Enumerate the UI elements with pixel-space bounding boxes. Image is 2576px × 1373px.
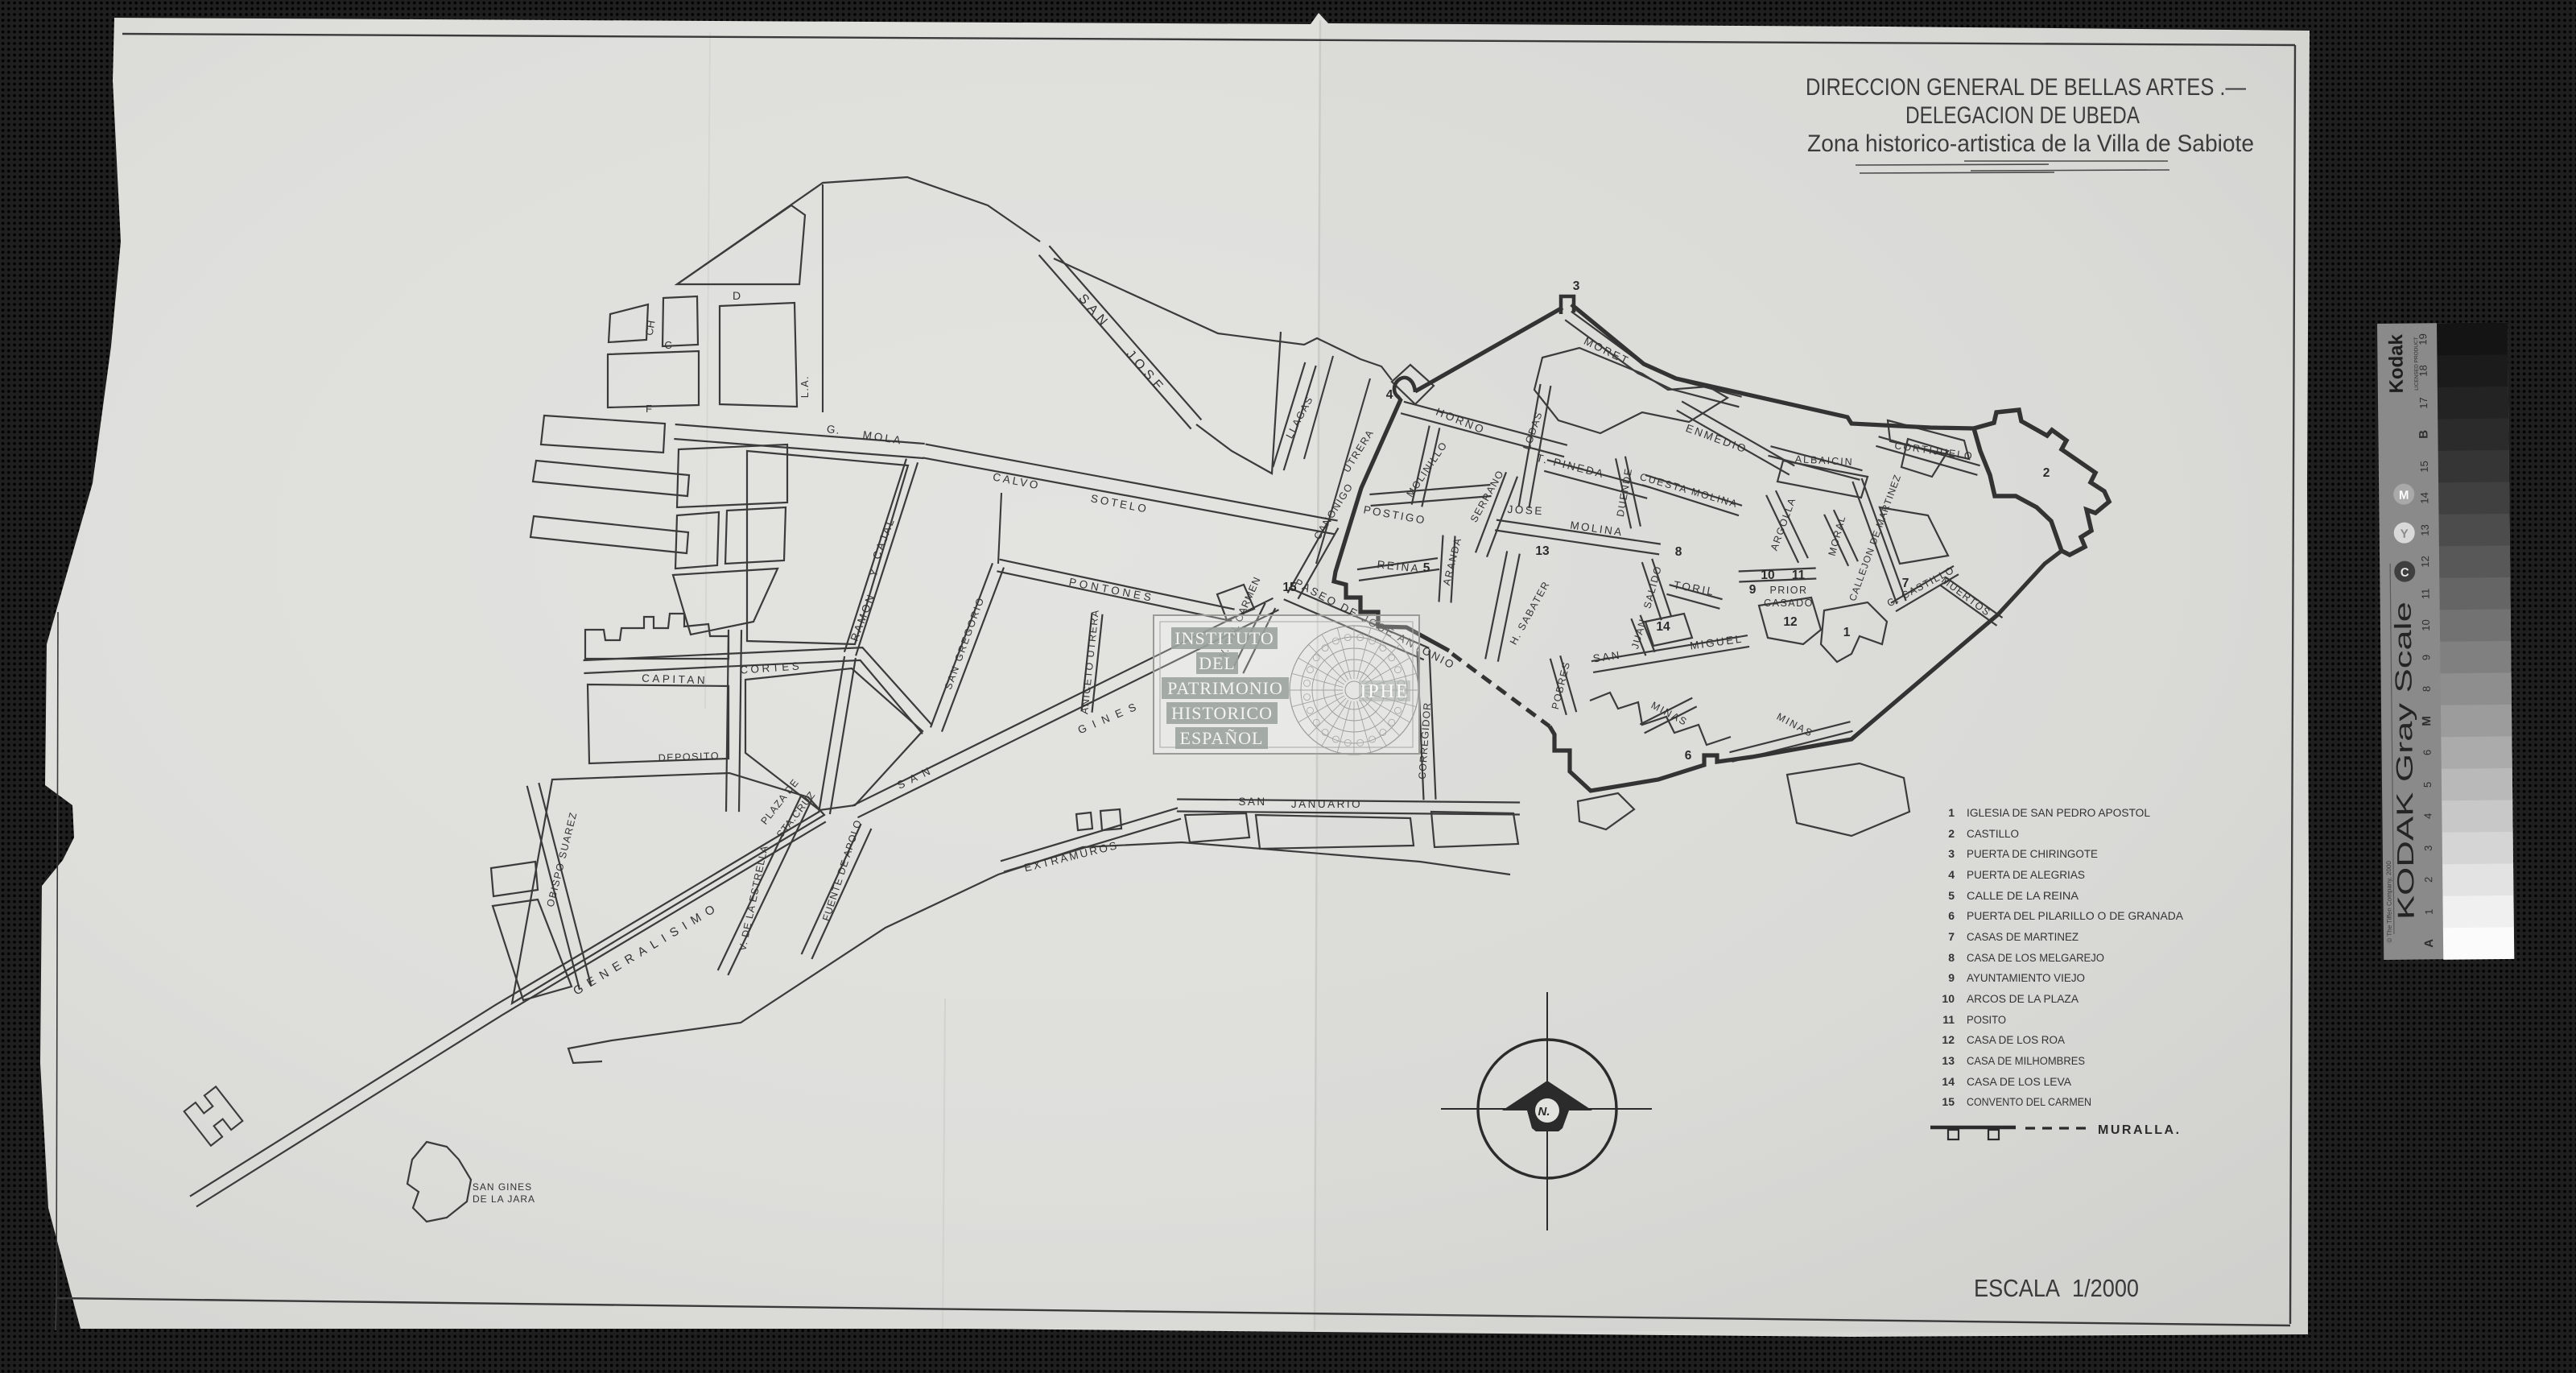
svg-text:12: 12 (1783, 615, 1797, 629)
svg-text:CASA DE MILHOMBRES: CASA DE MILHOMBRES (1967, 1055, 2085, 1067)
svg-text:5: 5 (2421, 782, 2434, 788)
svg-text:CASTILLO: CASTILLO (1967, 828, 2019, 840)
svg-text:5: 5 (1948, 889, 1955, 902)
svg-text:5: 5 (1423, 561, 1430, 575)
svg-text:PRIOR: PRIOR (1769, 585, 1807, 596)
svg-text:C: C (2401, 566, 2409, 580)
svg-text:13: 13 (1942, 1054, 1955, 1067)
svg-text:CAPITAN: CAPITAN (642, 672, 708, 687)
svg-text:7: 7 (1902, 577, 1909, 590)
svg-text:F: F (646, 403, 652, 415)
svg-text:ESPAÑOL: ESPAÑOL (1180, 728, 1264, 748)
svg-text:DELEGACION DE UBEDA: DELEGACION DE UBEDA (1905, 102, 2140, 129)
svg-text:11: 11 (2419, 589, 2431, 600)
svg-text:PATRIMONIO: PATRIMONIO (1167, 678, 1283, 698)
svg-text:7: 7 (1948, 930, 1955, 943)
svg-text:M: M (2420, 716, 2434, 726)
svg-text:10: 10 (1942, 992, 1955, 1005)
svg-text:DEL: DEL (1199, 653, 1236, 673)
svg-text:PUERTA DE CHIRINGOTE: PUERTA DE CHIRINGOTE (1967, 848, 2098, 860)
svg-text:4: 4 (1948, 868, 1955, 881)
svg-text:CASAS DE MARTINEZ: CASAS DE MARTINEZ (1967, 931, 2079, 943)
svg-text:9: 9 (1948, 971, 1955, 984)
svg-text:6: 6 (2421, 750, 2434, 755)
svg-text:SAN: SAN (1238, 796, 1266, 808)
svg-text:B: B (2417, 430, 2430, 439)
svg-text:MURALLA.: MURALLA. (2098, 1123, 2182, 1137)
svg-text:CONVENTO DEL CARMEN: CONVENTO DEL CARMEN (1967, 1096, 2091, 1108)
svg-text:SAN GINES: SAN GINES (473, 1181, 532, 1193)
svg-text:10: 10 (1761, 569, 1774, 582)
svg-text:8: 8 (2421, 686, 2433, 692)
svg-text:14: 14 (1656, 620, 1670, 634)
svg-text:M: M (2399, 489, 2409, 502)
svg-text:8: 8 (1675, 545, 1682, 559)
svg-text:DE LA JARA: DE LA JARA (473, 1193, 535, 1205)
svg-text:PUERTA DE ALEGRIAS: PUERTA DE ALEGRIAS (1967, 869, 2085, 881)
svg-text:9: 9 (1749, 583, 1757, 597)
svg-text:PUERTA DEL PILARILLO O DE GRAN: PUERTA DEL PILARILLO O DE GRANADA (1967, 910, 2183, 922)
svg-text:IGLESIA DE SAN PEDRO APOSTOL: IGLESIA DE SAN PEDRO APOSTOL (1967, 807, 2150, 819)
svg-text:C: C (664, 339, 671, 351)
svg-text:13: 13 (1535, 544, 1550, 558)
svg-text:1: 1 (1948, 806, 1955, 819)
svg-text:CASA DE LOS ROA: CASA DE LOS ROA (1967, 1034, 2065, 1046)
svg-text:Y: Y (2401, 527, 2409, 541)
svg-text:3: 3 (1948, 847, 1955, 860)
svg-text:CASADO: CASADO (1764, 598, 1814, 609)
svg-text:IPHE: IPHE (1360, 681, 1409, 702)
svg-text:DEPOSITO: DEPOSITO (658, 751, 720, 764)
svg-text:8: 8 (1948, 951, 1955, 964)
svg-text:2: 2 (1948, 827, 1955, 840)
svg-text:2: 2 (2043, 466, 2050, 480)
svg-text:6: 6 (1948, 909, 1955, 922)
svg-text:15: 15 (2418, 461, 2430, 473)
svg-text:© The Tiffen Company, 2000: © The Tiffen Company, 2000 (2385, 861, 2393, 943)
svg-text:12: 12 (1942, 1033, 1955, 1046)
svg-text:G.: G. (826, 423, 841, 436)
svg-text:15: 15 (1282, 581, 1297, 594)
svg-text:L.A.: L.A. (799, 375, 811, 398)
svg-text:AYUNTAMIENTO VIEJO: AYUNTAMIENTO VIEJO (1967, 972, 2085, 984)
svg-text:3: 3 (1573, 279, 1580, 293)
svg-text:1: 1 (2423, 909, 2435, 915)
svg-text:14: 14 (1942, 1075, 1955, 1088)
svg-text:4: 4 (1386, 388, 1393, 402)
svg-text:ESCALA 1/2000: ESCALA 1/2000 (1974, 1274, 2139, 1302)
svg-text:14: 14 (2418, 492, 2430, 504)
svg-text:9: 9 (2420, 655, 2432, 660)
svg-text:Kodak: Kodak (2385, 333, 2408, 393)
svg-text:6: 6 (1685, 749, 1692, 763)
svg-text:POSITO: POSITO (1967, 1014, 2006, 1026)
svg-text:HISTORICO: HISTORICO (1171, 703, 1273, 723)
svg-text:CASA DE LOS LEVA: CASA DE LOS LEVA (1967, 1076, 2071, 1088)
svg-text:N.: N. (1538, 1105, 1550, 1119)
svg-text:CH: CH (643, 320, 658, 337)
svg-text:INSTITUTO: INSTITUTO (1174, 628, 1274, 648)
svg-text:3: 3 (2422, 846, 2434, 851)
svg-text:D: D (733, 289, 741, 302)
svg-text:10: 10 (2420, 619, 2432, 631)
svg-text:CASA DE LOS MELGAREJO: CASA DE LOS MELGAREJO (1967, 952, 2104, 964)
svg-text:11: 11 (1942, 1013, 1955, 1026)
svg-text:15: 15 (1942, 1095, 1955, 1108)
svg-text:LICENSED PRODUCT: LICENSED PRODUCT (2413, 337, 2420, 391)
svg-text:Zona historico-artistica de la: Zona historico-artistica de la Villa de … (1807, 130, 2254, 157)
svg-text:DIRECCION GENERAL DE BELLAS: DIRECCION GENERAL DE BELLAS ARTES .— (1806, 74, 2246, 101)
svg-text:13: 13 (2419, 524, 2431, 536)
svg-text:JOSE: JOSE (1507, 503, 1544, 517)
svg-text:1: 1 (1843, 626, 1851, 639)
svg-text:12: 12 (2419, 556, 2431, 568)
svg-text:A: A (2422, 939, 2436, 948)
svg-text:ARCOS DE LA PLAZA: ARCOS DE LA PLAZA (1967, 993, 2079, 1005)
svg-text:2: 2 (2422, 877, 2434, 883)
svg-text:JANUARIO: JANUARIO (1291, 798, 1362, 810)
svg-text:17: 17 (2417, 397, 2429, 409)
svg-text:4: 4 (2421, 813, 2434, 819)
svg-text:11: 11 (1792, 569, 1806, 582)
svg-text:CALLE DE LA REINA: CALLE DE LA REINA (1967, 890, 2079, 902)
svg-text:KODAK Gray Scale: KODAK Gray Scale (2391, 602, 2420, 920)
